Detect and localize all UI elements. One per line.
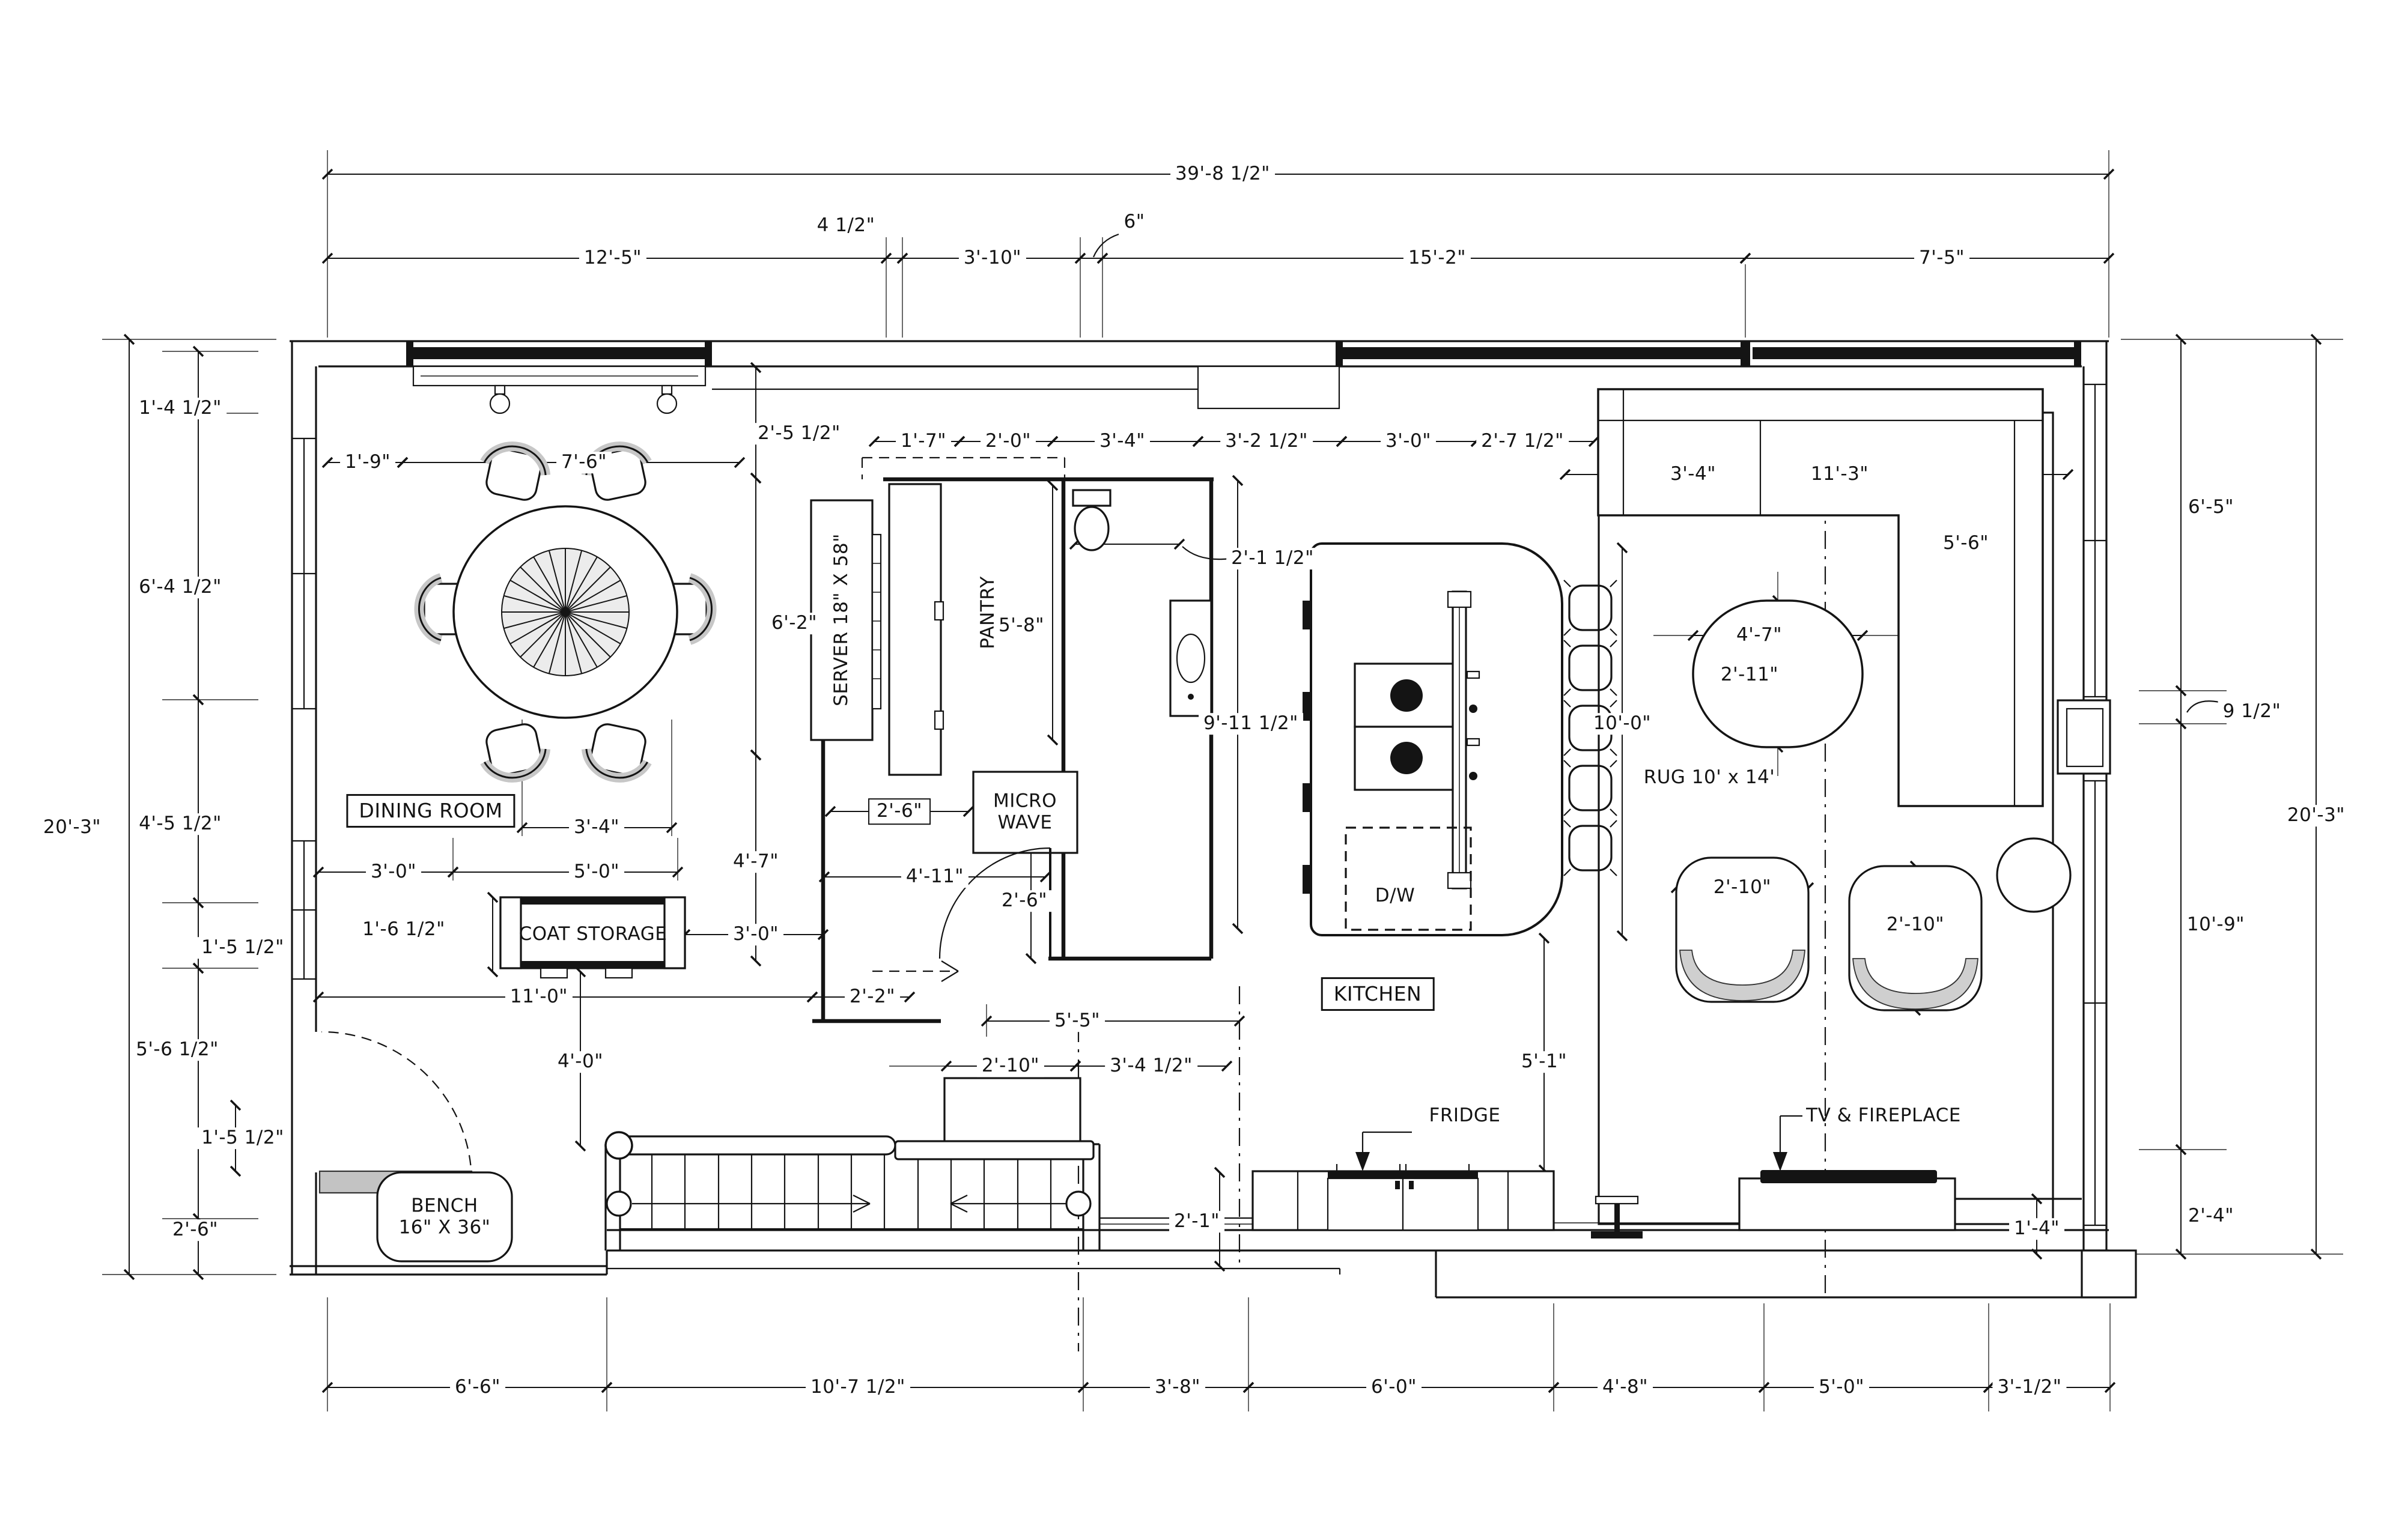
dim-bottom: 5'-0" [1814, 1377, 1869, 1398]
dim-left: 6'-4 1/2" [134, 577, 227, 598]
dim-interior: 3'-4 1/2" [1105, 1055, 1197, 1077]
dim-interior: 2'-10" [1882, 914, 1949, 936]
dim-right-overall: 20'-3" [2282, 805, 2350, 826]
dim-interior: 6'-2" [767, 613, 822, 634]
server-label: SERVER 18" X 58" [831, 533, 853, 706]
dim-right: 9 1/2" [2218, 701, 2286, 723]
fridge-cabinets [1253, 1164, 1554, 1230]
kitchen-island [1303, 544, 1562, 935]
dim-right: 6'-5" [2183, 497, 2239, 518]
dim-interior: 3'-0" [366, 861, 421, 883]
dim-bottom: 6'-6" [450, 1377, 505, 1398]
dim-bottom: 3'-8" [1150, 1377, 1205, 1398]
dim-top: 3'-10" [959, 247, 1026, 269]
dim-interior: 3'-4" [1095, 431, 1150, 452]
dim-interior: 2'-11" [1716, 664, 1783, 686]
dim-cased-opening: 2'-6" [868, 798, 931, 825]
toilet-bowl [1075, 507, 1108, 550]
dim-top: 15'-2" [1403, 247, 1471, 269]
dim-interior: 3'-4" [569, 817, 624, 838]
dim-interior: 5'-5" [1050, 1010, 1105, 1032]
dim-interior: 5'-6" [1938, 533, 1993, 554]
dim-interior: 3'-0" [1381, 431, 1436, 452]
dim-interior: 2'-10" [1709, 877, 1776, 899]
dim-interior: 1'-4" [2009, 1218, 2064, 1240]
interior-walls [606, 740, 1739, 1250]
dim-top: 6" [1119, 211, 1150, 233]
dim-interior: 3'-2 1/2" [1220, 431, 1313, 452]
powder-room [940, 478, 1211, 959]
dim-interior: 9'-11 1/2" [1199, 713, 1303, 735]
dim-bottom: 6'-0" [1366, 1377, 1422, 1398]
tv-screen [1760, 1170, 1937, 1183]
bench-label: BENCH 16" X 36" [399, 1195, 491, 1238]
room-label-dining: DINING ROOM [346, 794, 515, 828]
dim-left: 1'-5 1/2" [196, 1127, 289, 1149]
fridge-door [1403, 1178, 1478, 1230]
coat-storage-label: COAT STORAGE [519, 924, 667, 945]
fridge-label: FRIDGE [1429, 1105, 1501, 1127]
dim-left: 1'-4 1/2" [134, 398, 227, 419]
dim-interior: 1'-7" [896, 431, 951, 452]
dim-interior: 2'-10" [977, 1055, 1044, 1077]
dim-bottom: 4'-8" [1598, 1377, 1653, 1398]
floor-plan-drawing [0, 0, 2381, 1540]
dim-interior: 5'-0" [569, 861, 624, 883]
toilet-tank [1073, 490, 1110, 506]
entry-door [320, 1032, 472, 1193]
stairs [606, 1132, 1093, 1229]
side-table [1997, 838, 2070, 912]
dim-interior: 3'-0" [728, 924, 783, 945]
dim-interior: 3'-4" [1665, 464, 1721, 485]
microwave-label: MICRO WAVE [993, 790, 1057, 833]
dim-right: 2'-4" [2183, 1205, 2239, 1227]
stair-railing [616, 1136, 895, 1154]
dim-interior: 4'-7" [728, 851, 783, 873]
dim-left-overall: 20'-3" [38, 817, 106, 838]
dim-interior: 7'-6" [556, 452, 612, 473]
dim-interior: 2'-1 1/2" [1226, 548, 1319, 569]
dim-left: 2'-6" [168, 1219, 223, 1241]
pantry-cabinet [889, 484, 941, 775]
room-label-kitchen: KITCHEN [1321, 977, 1435, 1011]
dim-interior: 4'-11" [901, 866, 969, 888]
pantry-label: PANTRY [978, 576, 999, 649]
fridge-door [1328, 1178, 1403, 1230]
dim-interior: 2'-0" [981, 431, 1036, 452]
rug-label: RUG 10' x 14' [1644, 767, 1775, 789]
dim-interior: 2'-6" [997, 890, 1052, 912]
dim-top: 4 1/2" [812, 215, 880, 237]
faucet [1467, 671, 1479, 678]
dim-top: 12'-5" [579, 247, 646, 269]
dim-interior: 1'-6 1/2" [357, 919, 450, 941]
dim-interior: 11'-3" [1806, 464, 1873, 485]
floor-plan-page: 39'-8 1/2" 12'-5" 4 1/2" 3'-10" 6" 15'-2… [0, 0, 2381, 1540]
faucet [1467, 739, 1479, 745]
dim-overall-width: 39'-8 1/2" [1170, 163, 1275, 185]
dim-interior: 10'-0" [1589, 713, 1656, 735]
dim-right: 10'-9" [2182, 914, 2249, 936]
dim-interior: 2'-5 1/2" [753, 423, 845, 444]
tv-fireplace-label: TV & FIREPLACE [1806, 1105, 1961, 1127]
dim-bottom: 3'-1/2" [1992, 1377, 2066, 1398]
dim-interior: 2'-7 1/2" [1476, 431, 1569, 452]
dim-interior: 11'-0" [505, 986, 573, 1008]
dim-left: 4'-5 1/2" [134, 813, 227, 835]
dim-interior: 5'-1" [1516, 1051, 1572, 1073]
dim-interior: 1'-9" [340, 452, 395, 473]
dim-interior: 2'-1" [1169, 1211, 1224, 1232]
dim-interior: 5'-8" [994, 615, 1049, 637]
dim-left: 1'-5 1/2" [196, 937, 289, 959]
dim-left: 5'-6 1/2" [131, 1039, 224, 1061]
dim-interior: 4'-0" [553, 1051, 608, 1073]
dishwasher-label: D/W [1375, 885, 1415, 907]
dining-table-group [419, 441, 711, 784]
dim-bottom: 10'-7 1/2" [806, 1377, 910, 1398]
dim-top: 7'-5" [1914, 247, 1969, 269]
sectional-sofa [1598, 389, 2043, 806]
dim-interior: 4'-7" [1732, 625, 1787, 646]
dim-interior: 2'-2" [845, 986, 900, 1008]
